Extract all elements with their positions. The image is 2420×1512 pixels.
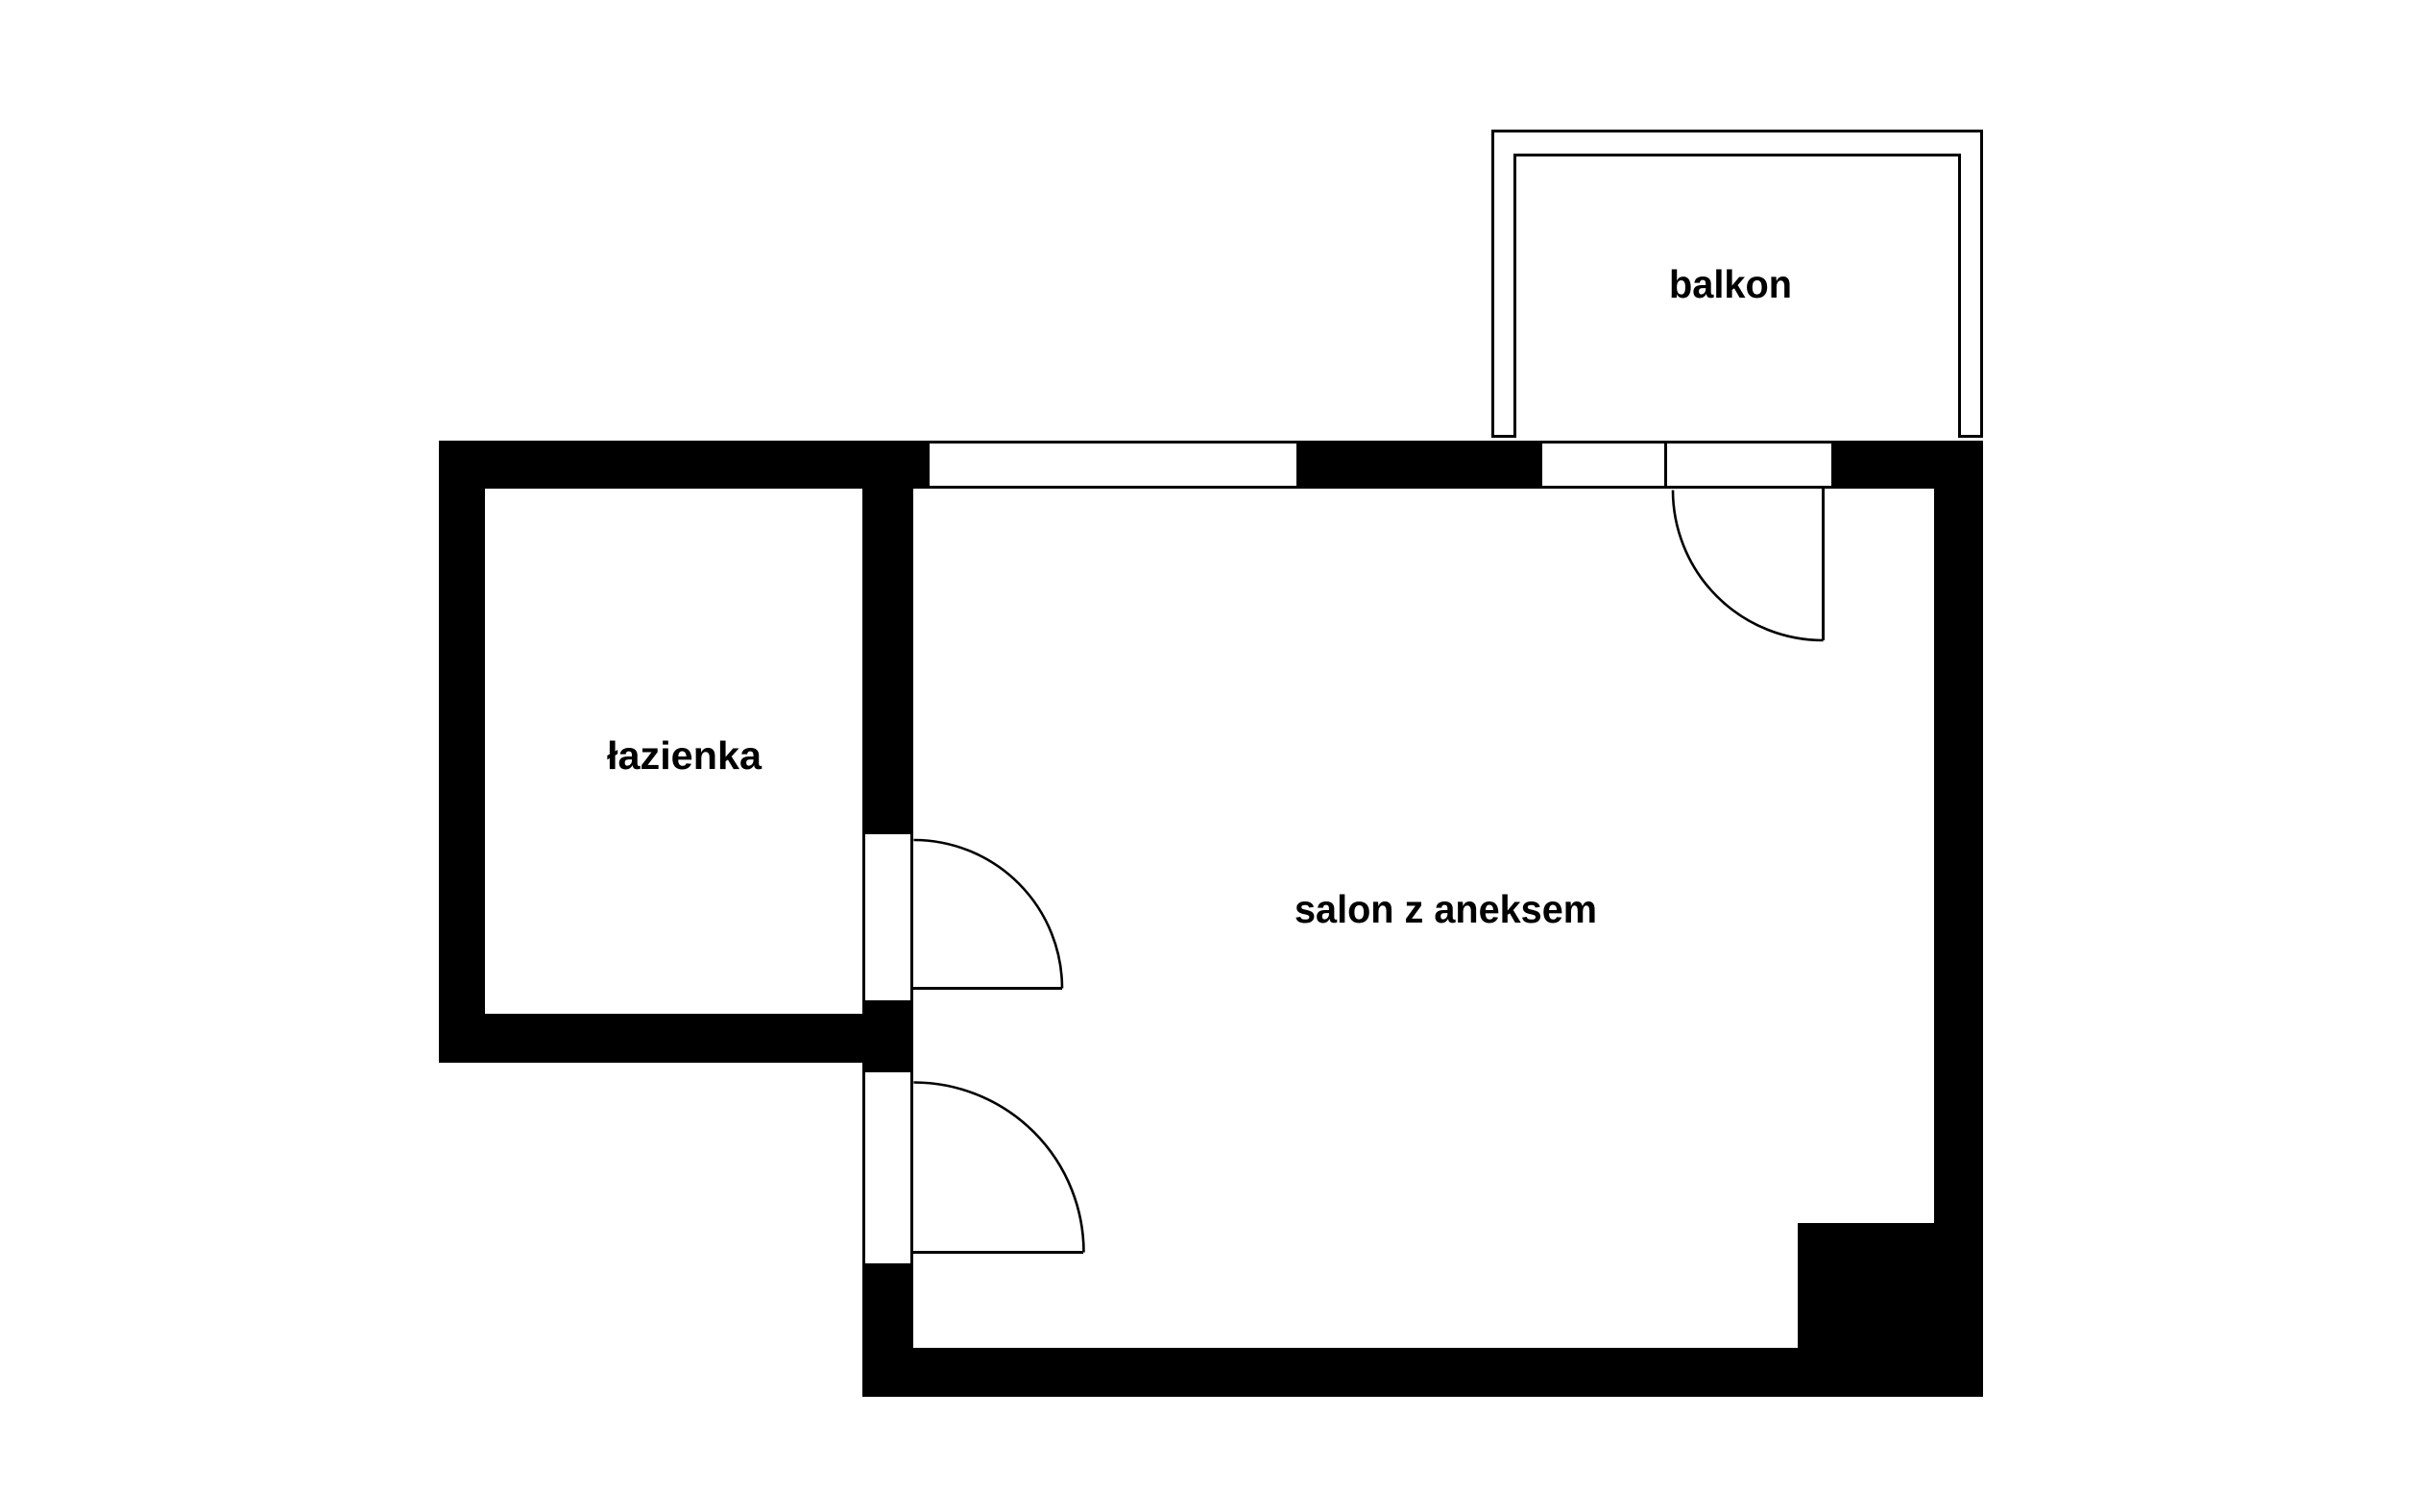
svg-text:łazienka: łazienka: [607, 733, 762, 778]
svg-text:salon z aneksem: salon z aneksem: [1295, 887, 1597, 931]
svg-text:balkon: balkon: [1669, 262, 1792, 306]
